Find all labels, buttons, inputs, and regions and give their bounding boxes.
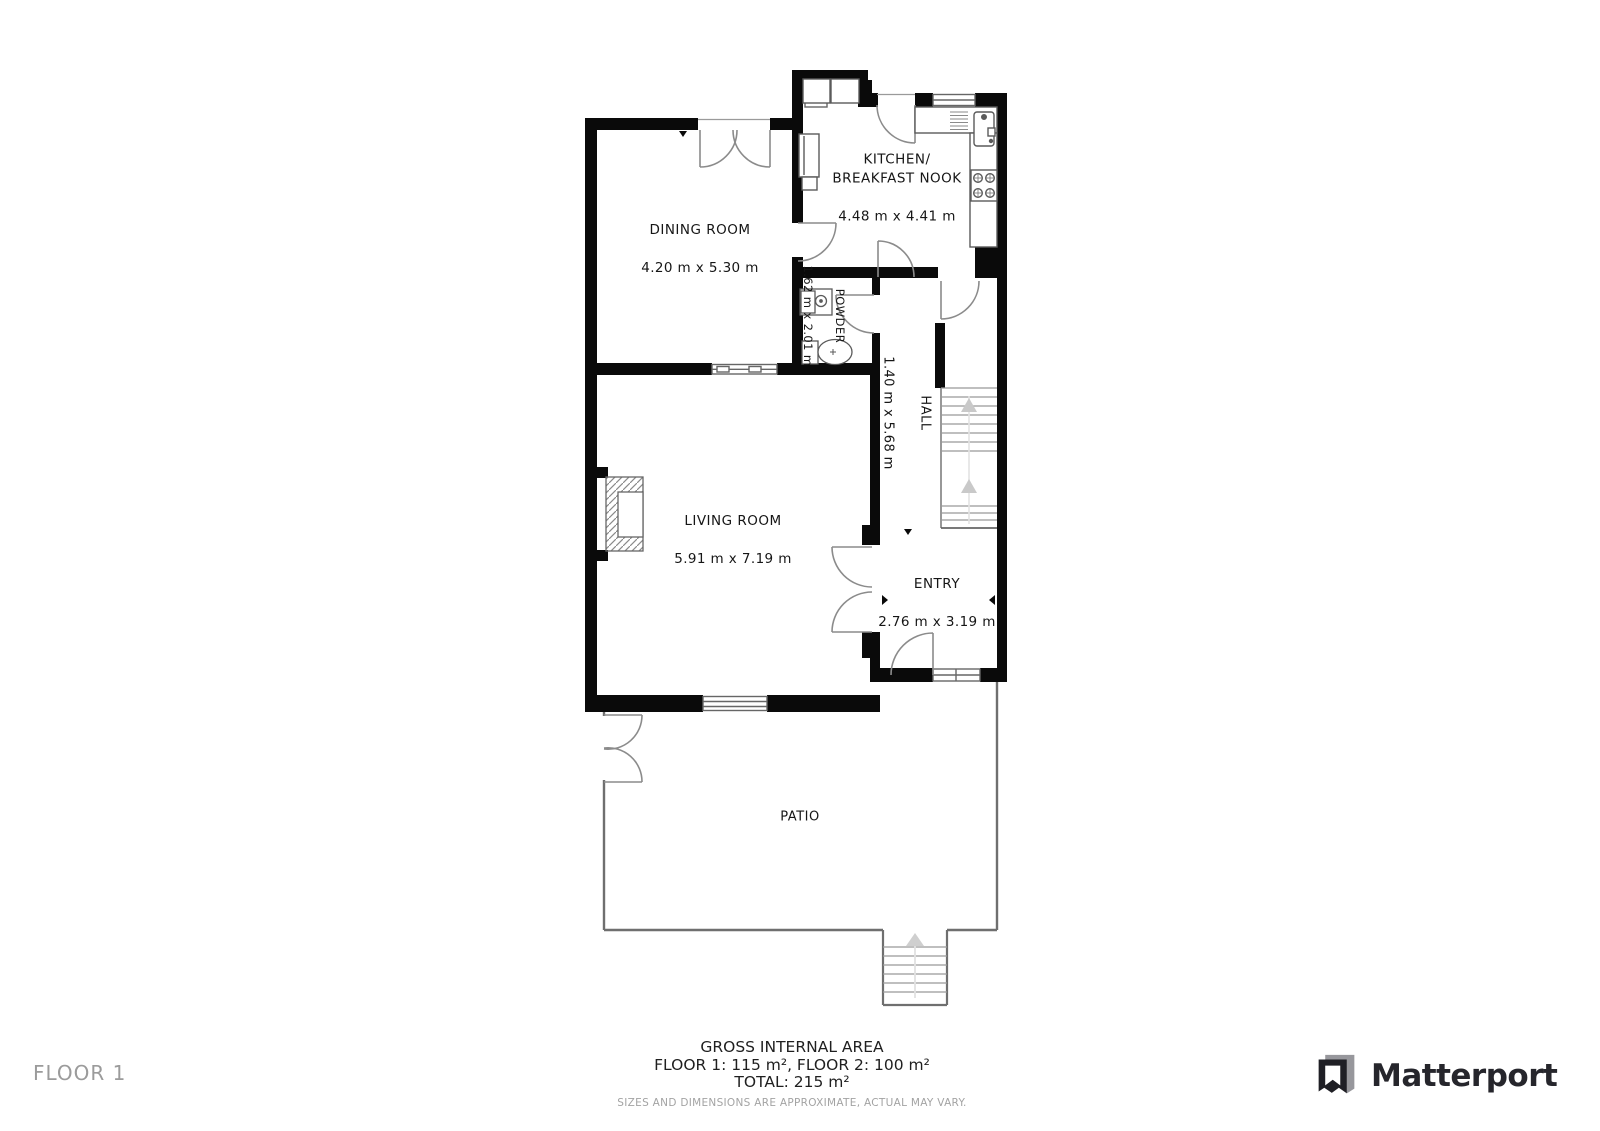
powder-room-label: POWDER 1.62 m x 2.01 m	[784, 265, 864, 366]
dining-kitchen-door	[798, 223, 836, 261]
area-summary: GROSS INTERNAL AREA FLOOR 1: 115 m², FLO…	[617, 1039, 966, 1112]
room-name: HALL	[915, 356, 933, 469]
room-name: ENTRY	[878, 575, 996, 594]
fireplace	[606, 477, 643, 551]
gross-area-title: GROSS INTERNAL AREA	[617, 1039, 966, 1057]
sink	[974, 112, 995, 146]
matterport-logo-icon	[1313, 1052, 1360, 1099]
room-dims: 4.48 m x 4.41 m	[832, 207, 961, 226]
fridge	[799, 134, 819, 190]
pass-through-window	[712, 365, 777, 375]
patio-label: PATIO	[780, 791, 819, 846]
room-name: DINING ROOM	[641, 221, 759, 240]
room-name: LIVING ROOM	[674, 512, 792, 531]
entry-closets	[803, 79, 859, 103]
floor-number-label: FLOOR 1	[33, 1061, 126, 1085]
room-dims: 5.91 m x 7.19 m	[674, 549, 792, 568]
room-dims: 1.62 m x 2.01 m	[800, 265, 816, 366]
entry-label: ENTRY 2.76 m x 3.19 m	[878, 556, 996, 650]
matterport-logo: Matterport	[1313, 1052, 1557, 1099]
dining-double-door	[700, 130, 770, 167]
disclaimer-text: SIZES AND DIMENSIONS ARE APPROXIMATE, AC…	[617, 1095, 966, 1113]
room-name: POWDER	[832, 265, 848, 366]
hall-stairs-door	[941, 281, 979, 319]
stairs-up-arrow-icon	[906, 933, 924, 946]
dining-room-label: DINING ROOM 4.20 m x 5.30 m	[641, 202, 759, 296]
living-room-label: LIVING ROOM 5.91 m x 7.19 m	[674, 493, 792, 587]
total-area: TOTAL: 215 m²	[617, 1074, 966, 1092]
living-slider-window	[703, 697, 767, 711]
living-entry-double-door	[832, 547, 872, 632]
room-dims: 1.40 m x 5.68 m	[879, 356, 897, 469]
stove	[971, 170, 997, 201]
room-name: PATIO	[780, 809, 819, 827]
floorplan-page: DINING ROOM 4.20 m x 5.30 m KITCHEN/ BRE…	[0, 0, 1600, 1131]
hall-label: HALL 1.40 m x 5.68 m	[861, 356, 952, 469]
room-dims: 4.20 m x 5.30 m	[641, 258, 759, 277]
patio-stairs	[883, 930, 947, 1005]
floorplan	[0, 0, 1600, 1131]
floor-areas: FLOOR 1: 115 m², FLOOR 2: 100 m²	[617, 1057, 966, 1075]
kitchen-label: KITCHEN/ BREAKFAST NOOK 4.48 m x 4.41 m	[832, 131, 961, 244]
room-name: KITCHEN/ BREAKFAST NOOK	[832, 150, 961, 188]
patio-double-door	[604, 715, 642, 782]
room-dims: 2.76 m x 3.19 m	[878, 612, 996, 631]
front-door-threshold	[933, 669, 980, 681]
kitchen-window	[933, 95, 975, 106]
brand-wordmark: Matterport	[1371, 1058, 1557, 1094]
